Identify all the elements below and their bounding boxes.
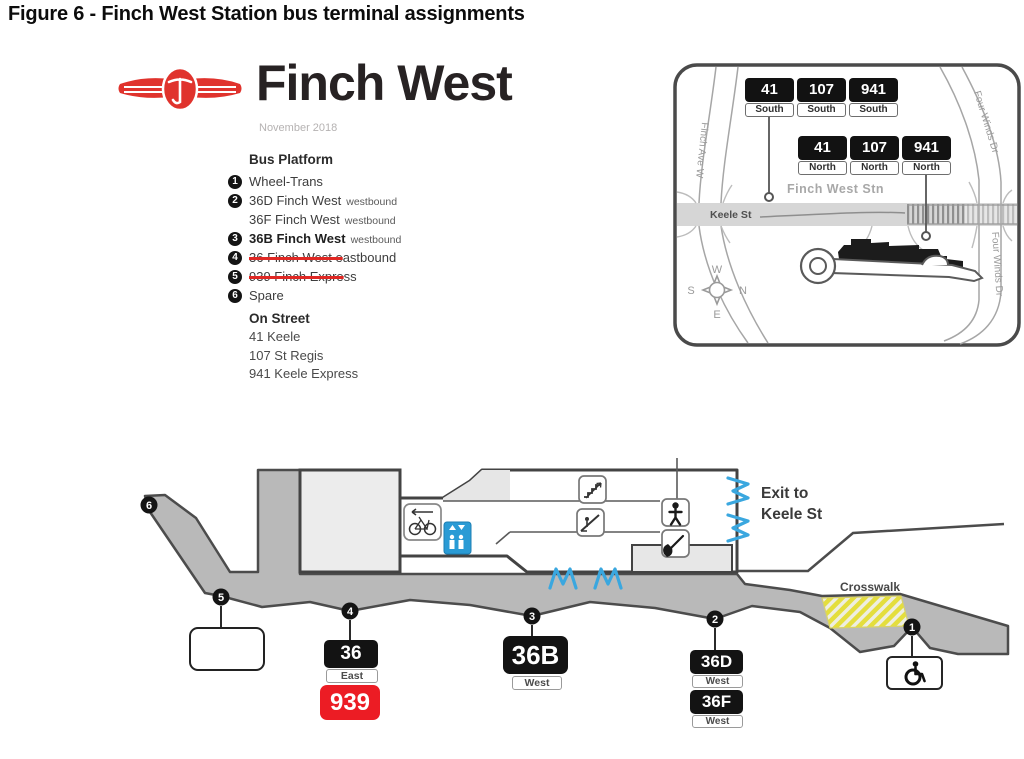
finch-west-stn-label: Finch West Stn [787, 182, 884, 196]
bicycle-icon [404, 504, 441, 540]
platform-number-badge: 4 [228, 251, 242, 265]
construction-icon [662, 530, 689, 557]
elevator-icon [444, 522, 471, 554]
bus-stop-badge: 107 North [850, 136, 899, 175]
road-edge [737, 524, 1004, 571]
spare-platform-sign [189, 627, 265, 671]
wheelchair-icon [903, 660, 927, 686]
list-item: 1 Wheel-Trans [228, 172, 401, 191]
direction-sign-west: West [512, 676, 562, 690]
platform-marker-5: 5 [218, 592, 224, 604]
station-title: Finch West [256, 54, 512, 112]
bus-platform-list: Bus Platform 1 Wheel-Trans 2 36D Finch W… [228, 152, 401, 305]
figure-page: Figure 6 - Finch West Station bus termin… [0, 0, 1024, 759]
stairs-icon [579, 476, 606, 503]
list-item: 3 36B Finch Westwestbound [228, 229, 401, 248]
svg-text:S: S [687, 285, 694, 297]
svg-text:E: E [713, 309, 720, 321]
platform-marker-4: 4 [347, 606, 354, 618]
wheel-trans-sign [886, 656, 943, 690]
area-map-canvas: W S N E Keele St Finch West Stn Finch Av… [672, 62, 1022, 348]
terminal-diagram: 6 5 4 3 2 1 [0, 430, 1024, 759]
list-item: 941 Keele Express [249, 366, 358, 385]
platform-number-badge: 1 [228, 175, 242, 189]
express-route-sign-939: 939 [320, 685, 380, 720]
platform-marker-2: 2 [712, 614, 718, 626]
platform-marker-6: 6 [146, 500, 152, 512]
platform-number-badge: 3 [228, 232, 242, 246]
platform-marker-1: 1 [909, 622, 915, 634]
direction-sign-west: West [692, 715, 743, 728]
list-item: 2 36D Finch Westwestbound [228, 191, 401, 210]
list-item: 6 Spare [228, 286, 401, 305]
north-stop-marker [922, 232, 930, 240]
platform-marker-3: 3 [529, 611, 535, 623]
route-sign-36D: 36D [690, 650, 743, 674]
bus-platform-heading: Bus Platform [249, 152, 401, 170]
route-sign-36F: 36F [690, 690, 743, 714]
on-street-list: On Street 41 Keele 107 St Regis 941 Keel… [249, 311, 358, 385]
exit-label: Exit to Keele St [761, 483, 822, 525]
list-item: 36F Finch Westwestbound [228, 210, 401, 229]
bus-stop-badge: 941 North [902, 136, 951, 175]
bus-stop-badge: 41 South [745, 78, 794, 117]
platform-number-badge: 2 [228, 194, 242, 208]
person-icon [662, 499, 689, 526]
station-building-west [300, 470, 400, 572]
list-item: 4 36 Finch West eastbound [228, 248, 401, 267]
platform-number-badge: 6 [228, 289, 242, 303]
svg-text:W: W [712, 264, 723, 276]
station-date: November 2018 [259, 122, 337, 134]
on-street-heading: On Street [249, 311, 358, 329]
area-map: W S N E Keele St Finch West Stn Finch Av… [672, 62, 1022, 348]
south-stop-marker [765, 193, 773, 201]
list-item: 41 Keele [249, 329, 358, 348]
direction-sign-west: West [692, 675, 743, 688]
keele-st-label: Keele St [710, 209, 752, 221]
bus-stop-badge: 107 South [797, 78, 846, 117]
crosswalk-label: Crosswalk [840, 580, 900, 594]
ttc-logo-icon [118, 66, 242, 116]
svg-text:N: N [739, 285, 747, 297]
direction-sign-east: East [326, 669, 378, 683]
bus-stop-badge: 41 North [798, 136, 847, 175]
list-item: 107 St Regis [249, 348, 358, 367]
platform-number-badge: 5 [228, 270, 242, 284]
bus-stop-badge: 941 South [849, 78, 898, 117]
route-sign-36: 36 [324, 640, 378, 668]
escalator-icon [577, 509, 604, 536]
route-sign-36B: 36B [503, 636, 568, 674]
figure-title: Figure 6 - Finch West Station bus termin… [8, 3, 525, 26]
list-item: 5 939 Finch Express [228, 267, 401, 286]
crosswalk-hatch [822, 596, 909, 628]
